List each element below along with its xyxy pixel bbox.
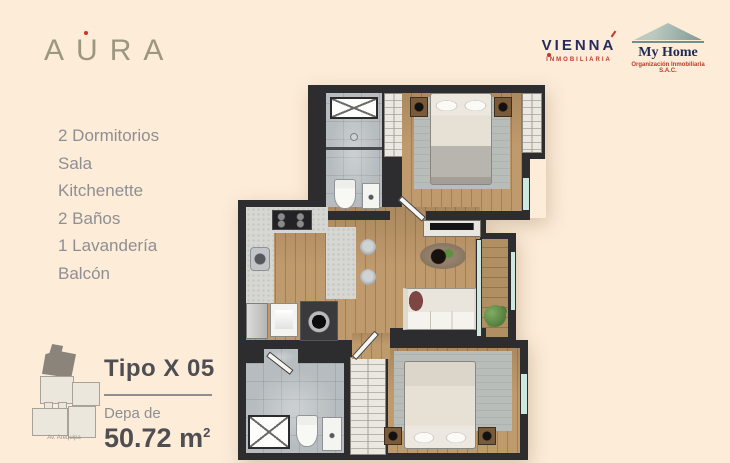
myhome-subtitle: Organización Inmobiliaria S.A.C. (626, 62, 710, 74)
coffee-table-icon (420, 243, 466, 269)
linen-closet-icon (330, 97, 378, 119)
sofa-icon (403, 288, 479, 330)
unit-info: Tipo X 05 Depa de 50.72 m2 (104, 355, 215, 454)
stove-icon (272, 210, 312, 230)
vienna-wordmark: VIENNA (542, 37, 617, 54)
feature-item: 2 Dormitorios (58, 126, 159, 146)
minimap-block (32, 408, 68, 436)
tv-console-icon (423, 220, 481, 237)
window-bedroom-2 (520, 373, 528, 415)
building-minimap: Av. Arequipa (28, 342, 100, 444)
flyer-page: AURA 2 Dormitorios Sala Kitchenette 2 Ba… (0, 0, 730, 463)
divider (104, 394, 212, 396)
wall-bath1-south (326, 211, 390, 220)
minimap-block (68, 406, 96, 438)
nightstand-icon (494, 97, 512, 117)
unit-type-label: Tipo X 05 (104, 355, 215, 383)
toilet-2-icon (296, 415, 318, 447)
washer-icon (300, 301, 338, 341)
bed-1-icon (430, 93, 492, 185)
vienna-text: VIENNA (542, 37, 617, 54)
area-unit: m (179, 423, 203, 453)
brand-letter-u: U (76, 34, 110, 68)
feature-item: Kitchenette (58, 181, 159, 201)
balcony-railing-glass (510, 251, 516, 311)
window-bedroom-1 (522, 177, 530, 211)
minimap-block (40, 376, 74, 404)
minimap-block (72, 382, 100, 406)
kitchen-sink-icon (250, 247, 270, 271)
sink-2-icon (322, 417, 342, 451)
feature-item: Balcón (58, 264, 159, 284)
unit-area-prefix: Depa de (104, 405, 215, 422)
wardrobe-2 (350, 357, 386, 455)
brand-letter: U (76, 34, 110, 67)
shower-glass-1 (326, 147, 382, 150)
laundry-tub-icon (270, 303, 298, 337)
nightstand-icon (478, 427, 496, 445)
sink-1-icon (362, 183, 380, 209)
stool-icon (360, 269, 376, 285)
feature-list: 2 Dormitorios Sala Kitchenette 2 Baños 1… (58, 126, 159, 291)
wardrobe-1 (522, 93, 542, 153)
toilet-1-icon (334, 179, 356, 209)
brand-accent-dot (84, 31, 88, 35)
vienna-dot-icon (547, 53, 551, 57)
brand-letters: RA (110, 34, 176, 67)
fridge-icon (246, 303, 268, 339)
kitchen-island (326, 227, 356, 299)
balcony-glass-door (476, 239, 482, 337)
nightstand-icon (384, 427, 402, 445)
closet-hall (384, 93, 404, 157)
roof-icon (634, 23, 702, 40)
brand-logo: AURA (44, 34, 175, 68)
feature-item: 1 Lavandería (58, 236, 159, 256)
area-number: 50.72 (104, 423, 172, 453)
nightstand-icon (410, 97, 428, 117)
plant-icon (484, 305, 506, 327)
brand-letter: A (44, 34, 76, 67)
area-unit-sup: 2 (203, 425, 210, 440)
bed-2-icon (404, 361, 476, 449)
roof-base-bar (632, 41, 704, 43)
wall-bedroom1-south (426, 211, 530, 220)
minimap-unit-highlight (42, 344, 76, 378)
floor-plan (238, 85, 546, 460)
feature-item: 2 Baños (58, 209, 159, 229)
facade-step-cutout (530, 159, 546, 218)
stool-icon (360, 239, 376, 255)
myhome-wordmark: My Home (626, 45, 710, 61)
myhome-logo: My Home Organización Inmobiliaria S.A.C. (626, 23, 710, 74)
shower-2-icon (248, 415, 290, 449)
vienna-subtitle: INMOBILIARIA (536, 57, 622, 63)
shower-head-icon (350, 133, 358, 141)
feature-item: Sala (58, 154, 159, 174)
unit-area-value: 50.72 m2 (104, 423, 215, 454)
minimap-street-label: Av. Arequipa (28, 435, 100, 441)
vienna-logo: VIENNA INMOBILIARIA (536, 37, 622, 63)
